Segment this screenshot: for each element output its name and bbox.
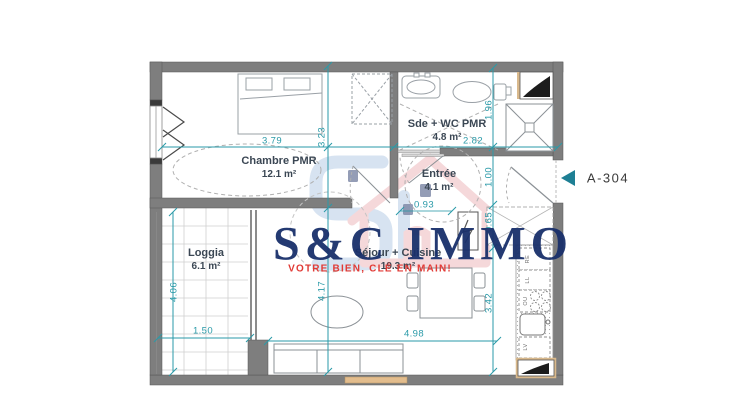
room-name: Chambre PMR: [241, 155, 316, 167]
wall-bedroom-south: [150, 198, 352, 208]
duct-top: [517, 72, 553, 99]
appliance-label-oven: OU: [523, 296, 529, 305]
wall-left-upper: [150, 62, 162, 100]
appliance-label-washer: LL: [525, 276, 531, 283]
room-name: Entrée: [422, 168, 456, 180]
sofa: [274, 344, 403, 373]
room-label-entree: Entrée 4.1 m²: [422, 164, 456, 194]
dim-entry-door: 1.00: [484, 167, 495, 187]
bathroom-sink: [402, 73, 440, 98]
room-name: Sde + WC PMR: [408, 118, 487, 130]
dim-loggia-height: 4.06: [169, 282, 180, 302]
unit-label: A-304: [587, 171, 629, 186]
dim-loggia-width: 1.50: [193, 326, 213, 337]
entry-arrow-icon: [561, 170, 575, 186]
room-area: 4.1 m²: [422, 182, 456, 194]
dim-sde-width: 2.82: [463, 136, 483, 147]
bedroom-window: [150, 106, 184, 160]
pillow: [246, 78, 272, 90]
toilet: [453, 82, 511, 103]
dim-sejour-width: 4.98: [404, 329, 424, 340]
window-sill-bottom: [150, 158, 162, 164]
room-label-loggia: Loggia 6.1 m²: [188, 243, 224, 273]
dim-entree-width: 0.93: [414, 200, 434, 211]
dim-chambre-height: 3.23: [317, 127, 328, 147]
dim-kitchen-height: 3.42: [484, 293, 495, 313]
floor-plan-page: Chambre PMR 12.1 m² Sde + WC PMR 4.8 m² …: [0, 0, 750, 420]
wall-top: [150, 62, 563, 72]
kitchen-sink: [520, 314, 545, 335]
room-label-chambre: Chambre PMR 12.1 m²: [241, 151, 316, 181]
bed: [238, 74, 322, 134]
chair: [474, 273, 485, 288]
wardrobe: [352, 74, 392, 124]
room-name: Loggia: [188, 247, 224, 259]
dim-sde-height: 1.96: [484, 100, 495, 120]
chair: [407, 273, 418, 288]
wall-loggia-block: [248, 340, 268, 375]
floor-plan-drawing: [0, 0, 750, 420]
living-room-window: [345, 377, 407, 383]
shower: [506, 104, 553, 151]
dim-chambre-width: 3.79: [262, 136, 282, 147]
entry-door: [506, 160, 556, 203]
appliance-label-dishwasher: LV: [523, 343, 529, 350]
room-area: 12.1 m²: [241, 169, 316, 181]
dim-sejour-height: 4.17: [317, 281, 328, 301]
dining-table: [407, 268, 485, 318]
wall-right-upper: [553, 62, 563, 160]
washing-machine: [519, 270, 550, 290]
chair: [407, 296, 418, 311]
pillow: [284, 78, 310, 90]
duct-bottom: [517, 359, 555, 377]
wall-bathroom-west: [390, 72, 398, 198]
watermark-tagline: VOTRE BIEN, CLÉ EN MAIN!: [288, 264, 452, 275]
french-window-icon: [163, 107, 184, 160]
room-area: 6.1 m²: [188, 261, 224, 273]
window-sill-top: [150, 100, 162, 106]
